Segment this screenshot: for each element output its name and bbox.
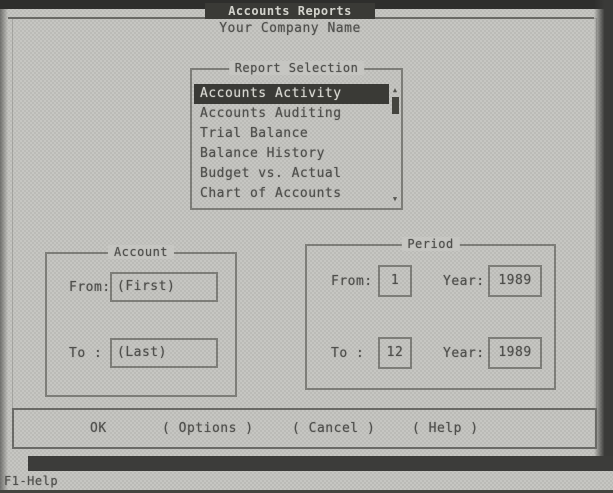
period-to-field[interactable]: 12 — [378, 337, 412, 369]
list-item-trial-balance[interactable]: Trial Balance — [194, 124, 399, 144]
help-button[interactable]: ( Help ) — [412, 410, 479, 447]
options-button[interactable]: ( Options ) — [162, 410, 254, 447]
account-range-box: Account From: (First) To : (Last) — [45, 252, 237, 397]
report-selection-box: Report Selection Accounts Activity Accou… — [190, 68, 403, 210]
period-to-label: To : — [331, 346, 364, 361]
account-to-field[interactable]: (Last) — [110, 338, 218, 368]
ok-button[interactable]: OK — [90, 410, 107, 447]
list-scrollbar[interactable]: ▲ ▼ — [390, 84, 400, 205]
company-name: Your Company Name — [197, 21, 383, 37]
account-from-field[interactable]: (First) — [110, 272, 218, 302]
accounts-reports-screen: Accounts Reports Your Company Name Repor… — [0, 0, 613, 493]
period-from-label: From: — [331, 274, 373, 289]
period-from-field[interactable]: 1 — [378, 265, 412, 297]
window-title: Accounts Reports — [205, 3, 375, 19]
report-list: Accounts Activity Accounts Auditing Tria… — [194, 84, 399, 204]
period-from-year-label: Year: — [443, 274, 485, 289]
scroll-down-icon[interactable]: ▼ — [390, 195, 400, 203]
scrollbar-thumb[interactable] — [392, 97, 399, 114]
account-box-title: Account — [108, 245, 174, 259]
list-item-accounts-auditing[interactable]: Accounts Auditing — [194, 104, 399, 124]
button-bar: OK ( Options ) ( Cancel ) ( Help ) — [12, 408, 597, 449]
status-help-hint: F1-Help — [4, 474, 58, 488]
account-to-label: To : — [69, 346, 102, 361]
account-from-label: From: — [69, 280, 111, 295]
photo-edge-left — [0, 9, 8, 490]
period-range-box: Period From: 1 Year: 1989 To : 12 Year: … — [305, 244, 556, 390]
period-to-year-field[interactable]: 1989 — [488, 337, 542, 369]
cancel-button[interactable]: ( Cancel ) — [292, 410, 375, 447]
period-to-year-label: Year: — [443, 346, 485, 361]
list-item-chart-of-accounts[interactable]: Chart of Accounts — [194, 184, 399, 204]
list-item-balance-history[interactable]: Balance History — [194, 144, 399, 164]
bottom-dark-band — [28, 456, 613, 471]
scroll-up-icon[interactable]: ▲ — [390, 86, 400, 94]
period-from-year-field[interactable]: 1989 — [488, 265, 542, 297]
period-box-title: Period — [401, 237, 459, 251]
list-item-accounts-activity[interactable]: Accounts Activity — [194, 84, 389, 104]
list-item-budget-vs-actual[interactable]: Budget vs. Actual — [194, 164, 399, 184]
report-selection-title: Report Selection — [229, 61, 365, 75]
